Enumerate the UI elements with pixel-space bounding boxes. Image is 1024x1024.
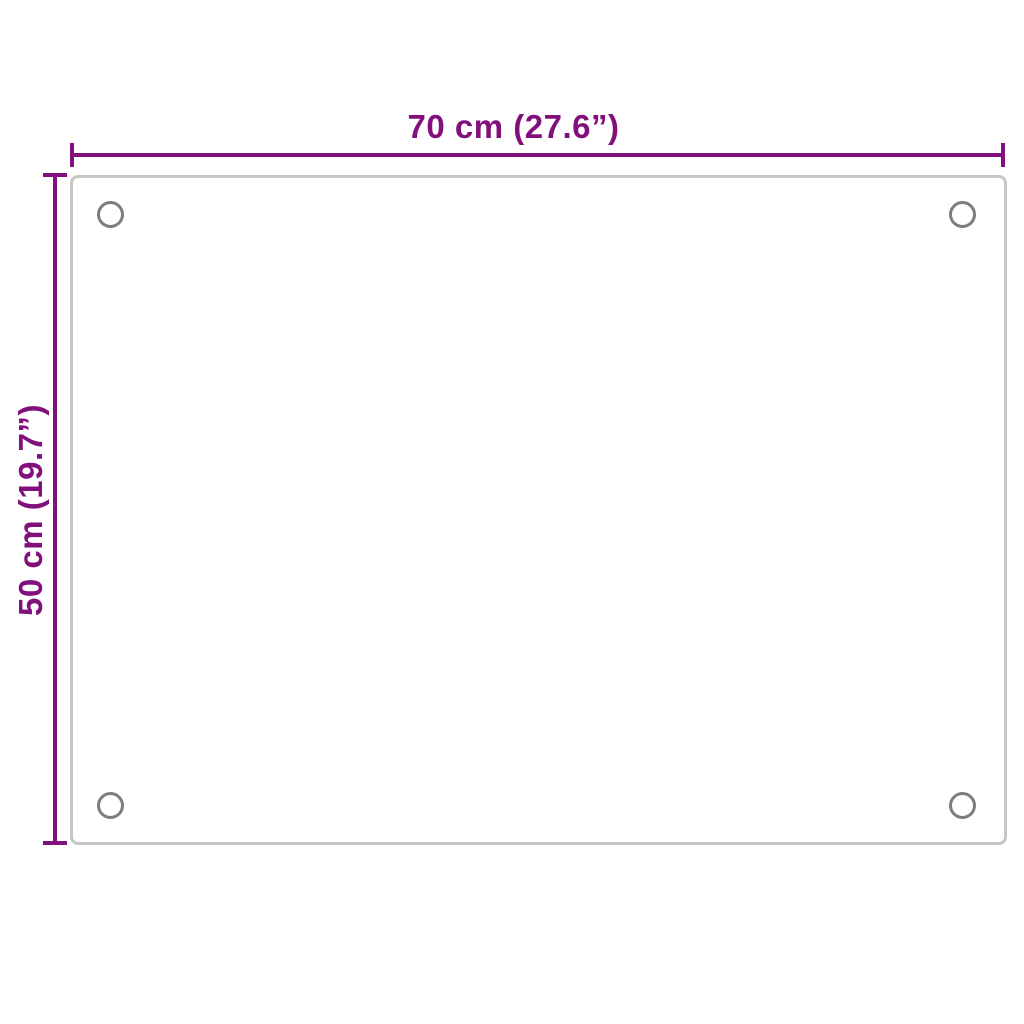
- width-dimension-line: [72, 153, 1003, 157]
- height-dimension-tick-top: [43, 173, 67, 177]
- splashback-panel: [70, 175, 1007, 845]
- mounting-hole-bottom-left: [97, 792, 124, 819]
- height-dimension-line: [53, 175, 57, 843]
- mounting-hole-top-left: [97, 201, 124, 228]
- product-dimension-diagram: 70 cm (27.6”) 50 cm (19.7”): [0, 0, 1024, 1024]
- height-dimension-label: 50 cm (19.7”): [11, 310, 51, 710]
- mounting-hole-top-right: [949, 201, 976, 228]
- width-dimension-tick-right: [1001, 143, 1005, 167]
- mounting-hole-bottom-right: [949, 792, 976, 819]
- width-dimension-tick-left: [70, 143, 74, 167]
- height-dimension-tick-bottom: [43, 841, 67, 845]
- width-dimension-label: 70 cm (27.6”): [72, 108, 955, 146]
